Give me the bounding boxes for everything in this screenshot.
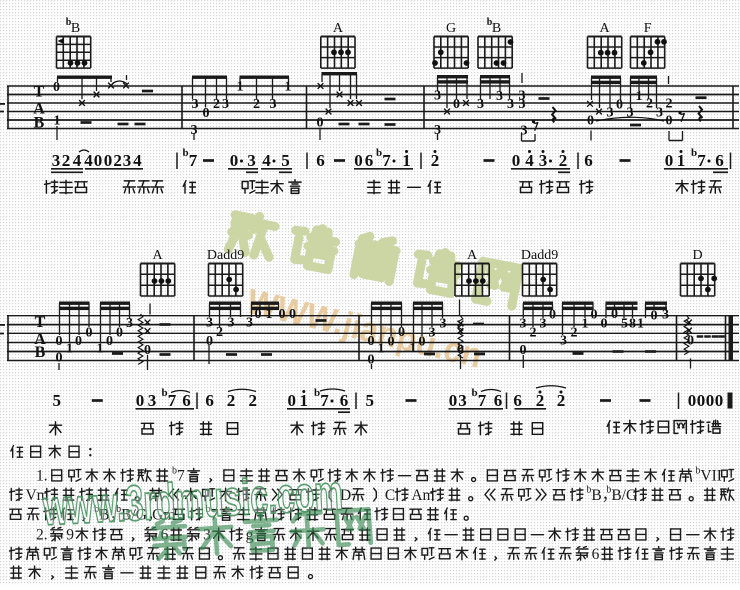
svg-text:2: 2: [62, 151, 71, 170]
svg-text:B: B: [71, 21, 80, 36]
svg-text:0: 0: [706, 391, 715, 410]
svg-text:3: 3: [458, 391, 467, 410]
svg-text:2: 2: [646, 96, 653, 111]
svg-text:0: 0: [591, 307, 598, 322]
svg-text:2: 2: [666, 96, 673, 111]
svg-text:4: 4: [133, 151, 142, 170]
svg-text:3: 3: [627, 105, 634, 120]
svg-text:0: 0: [651, 308, 658, 323]
svg-text:T: T: [35, 314, 46, 331]
svg-text:4: 4: [73, 151, 82, 170]
svg-text:3: 3: [540, 316, 547, 331]
svg-text:8: 8: [629, 317, 636, 332]
svg-text:0: 0: [53, 80, 60, 95]
svg-text:b: b: [691, 147, 697, 159]
svg-text:0: 0: [512, 151, 521, 170]
svg-text:1: 1: [97, 341, 104, 356]
svg-text:0: 0: [75, 334, 82, 349]
svg-text:0: 0: [279, 307, 286, 322]
svg-text:3: 3: [52, 151, 61, 170]
svg-text:F: F: [644, 21, 652, 36]
svg-text:6: 6: [513, 391, 522, 410]
svg-text:1: 1: [66, 341, 73, 356]
svg-text:0: 0: [398, 325, 405, 340]
svg-text:2: 2: [113, 151, 122, 170]
svg-text:2: 2: [227, 391, 236, 410]
svg-text:1: 1: [237, 79, 244, 94]
svg-text:1: 1: [637, 317, 644, 332]
svg-text:3: 3: [148, 391, 157, 410]
svg-text:3: 3: [520, 316, 527, 331]
svg-text:0: 0: [449, 391, 458, 410]
svg-text:3: 3: [477, 97, 484, 112]
svg-text:b: b: [471, 387, 477, 399]
svg-text:5: 5: [281, 151, 290, 170]
svg-text:6: 6: [592, 546, 600, 563]
svg-text:6: 6: [584, 151, 593, 170]
svg-text:5: 5: [366, 391, 375, 410]
svg-text:4: 4: [84, 151, 93, 170]
svg-text:0: 0: [287, 391, 296, 410]
svg-text:0: 0: [368, 334, 375, 349]
svg-text:4: 4: [262, 151, 271, 170]
svg-text:A: A: [600, 21, 611, 36]
svg-text:1: 1: [378, 341, 385, 356]
svg-text:0: 0: [56, 334, 63, 349]
svg-text:0: 0: [687, 333, 694, 348]
svg-text:b: b: [182, 147, 188, 159]
svg-text:6: 6: [205, 391, 214, 410]
svg-text:7: 7: [478, 391, 487, 410]
svg-text:0: 0: [549, 307, 556, 322]
svg-text:Dadd9: Dadd9: [207, 248, 244, 263]
svg-text:2: 2: [249, 391, 258, 410]
svg-text:B: B: [34, 115, 45, 132]
svg-text:0: 0: [94, 151, 103, 170]
svg-text:0: 0: [116, 325, 123, 340]
svg-text:D: D: [693, 248, 703, 263]
svg-text:T: T: [34, 84, 45, 101]
svg-text:3: 3: [246, 315, 253, 330]
svg-text:2: 2: [431, 151, 440, 170]
svg-text:2: 2: [559, 151, 568, 170]
svg-text:0: 0: [419, 334, 426, 349]
svg-text:2: 2: [216, 325, 223, 340]
svg-text:0: 0: [665, 151, 674, 170]
svg-text:3: 3: [222, 97, 229, 112]
svg-text:VII: VII: [700, 468, 722, 485]
svg-text:2: 2: [557, 391, 566, 410]
svg-text:6: 6: [182, 391, 191, 410]
svg-text:0: 0: [354, 151, 363, 170]
svg-text:6: 6: [316, 151, 325, 170]
svg-text:0: 0: [203, 106, 210, 121]
svg-text:0: 0: [86, 325, 93, 340]
svg-text:1: 1: [582, 316, 589, 331]
svg-text:B: B: [35, 344, 46, 361]
svg-text:0: 0: [611, 307, 618, 322]
svg-text:3: 3: [192, 97, 199, 112]
svg-text:7: 7: [320, 391, 329, 410]
svg-text:1: 1: [636, 89, 643, 104]
svg-text:3: 3: [656, 105, 663, 120]
svg-text:3: 3: [662, 307, 669, 322]
svg-text:7: 7: [382, 151, 391, 170]
svg-text:1: 1: [402, 151, 411, 170]
svg-text:6: 6: [365, 151, 374, 170]
svg-text:0: 0: [697, 391, 706, 410]
svg-text:3: 3: [434, 88, 441, 103]
svg-text:3: 3: [440, 316, 447, 331]
svg-text:3: 3: [507, 97, 514, 112]
svg-text:C: C: [385, 487, 395, 504]
svg-text:0: 0: [136, 391, 145, 410]
svg-text:2: 2: [530, 325, 537, 340]
svg-text:3: 3: [496, 89, 503, 104]
svg-text:5: 5: [621, 317, 628, 332]
svg-text:4: 4: [525, 151, 534, 170]
svg-text:3: 3: [228, 315, 235, 330]
svg-text:2: 2: [253, 97, 260, 112]
svg-text:6: 6: [340, 391, 349, 410]
svg-text:3: 3: [126, 316, 133, 331]
svg-text:0: 0: [255, 307, 262, 322]
svg-text:Am: Am: [411, 487, 434, 504]
svg-text:3: 3: [519, 97, 526, 112]
svg-text:b: b: [161, 387, 167, 399]
svg-text:0: 0: [715, 391, 724, 410]
svg-text:0: 0: [289, 307, 296, 322]
svg-text:0: 0: [453, 97, 460, 112]
svg-text:0: 0: [104, 151, 113, 170]
svg-text:2: 2: [213, 97, 220, 112]
svg-text:B/G: B/G: [611, 487, 637, 504]
svg-text:0: 0: [587, 113, 594, 128]
svg-text:A: A: [153, 248, 164, 263]
svg-text:1: 1: [285, 79, 292, 94]
svg-text:0: 0: [106, 334, 113, 349]
svg-text:1: 1: [300, 391, 309, 410]
svg-text:Dadd9: Dadd9: [521, 248, 558, 263]
svg-text:B: B: [492, 21, 501, 36]
svg-text:3: 3: [539, 151, 548, 170]
svg-text:A: A: [333, 21, 344, 36]
svg-text:3: 3: [560, 333, 567, 348]
svg-text:b: b: [314, 387, 320, 399]
svg-text:1: 1: [677, 151, 686, 170]
svg-text:0: 0: [616, 98, 623, 113]
svg-text:0: 0: [388, 334, 395, 349]
svg-text:1: 1: [266, 307, 273, 322]
svg-text:G: G: [446, 21, 456, 36]
svg-text:3: 3: [206, 315, 213, 330]
svg-text:6: 6: [494, 391, 503, 410]
svg-text:3: 3: [247, 151, 256, 170]
svg-text:6: 6: [715, 151, 724, 170]
svg-text:0: 0: [230, 151, 239, 170]
svg-text:2: 2: [536, 391, 545, 410]
svg-text:7: 7: [168, 391, 177, 410]
svg-text:3: 3: [123, 151, 132, 170]
svg-text:A: A: [467, 248, 478, 263]
svg-text:7: 7: [697, 151, 706, 170]
svg-text:0: 0: [666, 113, 673, 128]
svg-text:0: 0: [688, 391, 697, 410]
svg-text:5: 5: [53, 391, 62, 410]
svg-text:3: 3: [270, 97, 277, 112]
svg-text:2: 2: [571, 325, 578, 340]
svg-text:0: 0: [601, 317, 608, 332]
svg-text:1: 1: [410, 341, 417, 356]
svg-text:b: b: [376, 147, 382, 159]
svg-text:3: 3: [429, 325, 436, 340]
svg-text:7: 7: [189, 151, 198, 170]
